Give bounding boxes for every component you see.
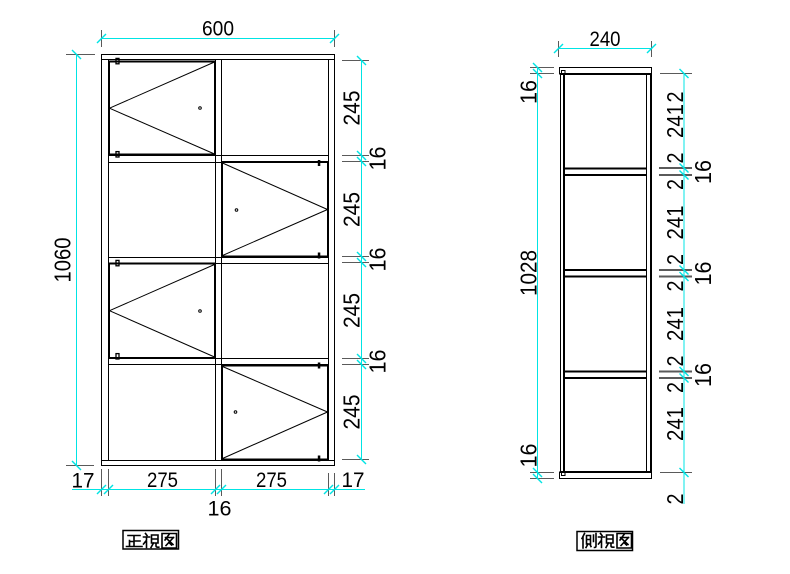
svg-text:600: 600 xyxy=(202,17,234,41)
svg-text:17: 17 xyxy=(342,468,365,492)
svg-text:241: 241 xyxy=(662,206,688,240)
svg-text:240: 240 xyxy=(590,27,621,51)
svg-text:2: 2 xyxy=(662,179,688,190)
svg-text:245: 245 xyxy=(339,91,365,126)
svg-text:17: 17 xyxy=(72,469,95,493)
svg-text:16: 16 xyxy=(208,497,232,521)
svg-text:2: 2 xyxy=(662,356,688,367)
svg-text:16: 16 xyxy=(365,350,391,374)
svg-text:16: 16 xyxy=(516,444,542,468)
svg-text:275: 275 xyxy=(147,468,178,492)
svg-text:245: 245 xyxy=(339,192,365,227)
svg-text:1060: 1060 xyxy=(50,238,76,283)
svg-text:2: 2 xyxy=(662,281,688,292)
svg-text:2: 2 xyxy=(662,382,688,393)
svg-text:241: 241 xyxy=(662,104,688,138)
svg-text:16: 16 xyxy=(365,248,391,272)
svg-text:245: 245 xyxy=(339,395,365,430)
svg-text:16: 16 xyxy=(690,363,716,387)
svg-text:16: 16 xyxy=(516,80,542,104)
svg-text:16: 16 xyxy=(690,160,716,184)
svg-text:275: 275 xyxy=(256,468,287,492)
svg-text:241: 241 xyxy=(662,307,688,341)
svg-text:1028: 1028 xyxy=(516,250,542,296)
svg-text:2: 2 xyxy=(662,92,688,103)
svg-text:2: 2 xyxy=(662,254,688,265)
svg-text:241: 241 xyxy=(662,407,688,441)
svg-text:2: 2 xyxy=(662,153,688,164)
svg-text:16: 16 xyxy=(365,147,391,171)
svg-text:245: 245 xyxy=(339,293,365,328)
svg-text:16: 16 xyxy=(690,262,716,286)
svg-text:2: 2 xyxy=(662,494,688,505)
